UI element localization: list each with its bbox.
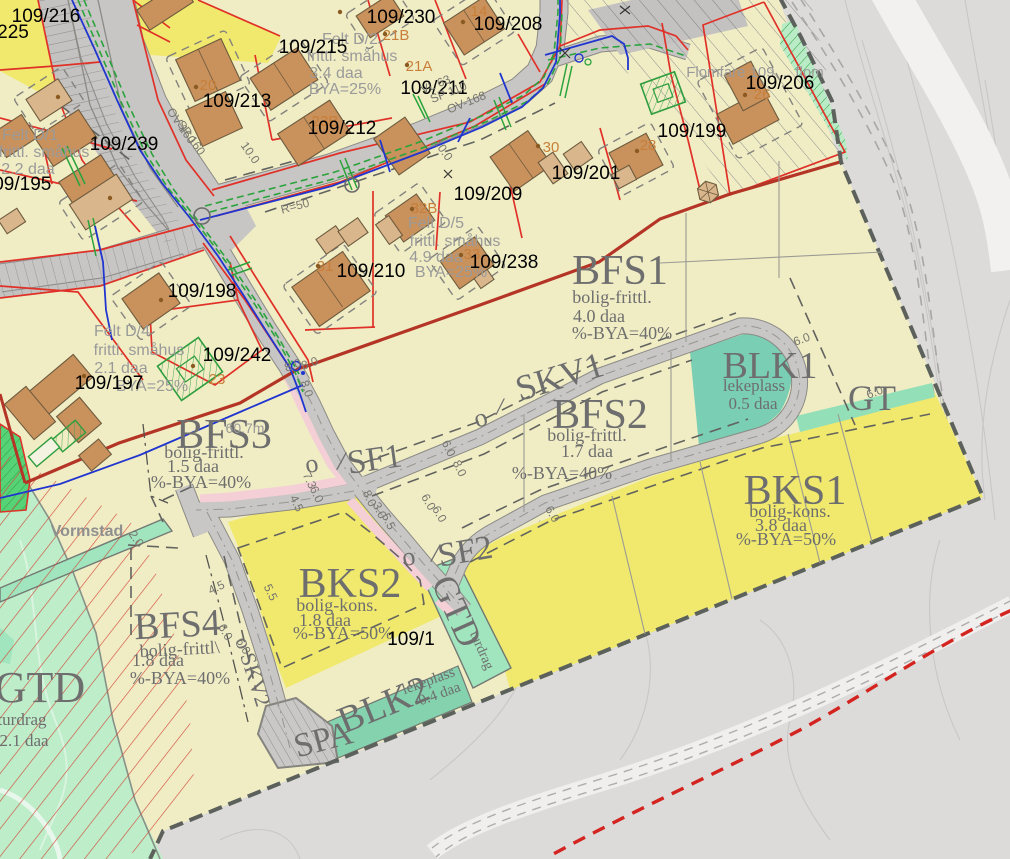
svg-text:28: 28 <box>640 137 657 154</box>
svg-text:2.1 daa: 2.1 daa <box>0 731 49 750</box>
svg-text:Felt D/1: Felt D/1 <box>2 127 58 144</box>
svg-text:109/213: 109/213 <box>203 91 272 112</box>
svg-text:109/199: 109/199 <box>658 121 727 142</box>
svg-text:30: 30 <box>543 139 560 156</box>
svg-text:Vormstad: Vormstad <box>51 523 124 540</box>
svg-text:frittl. småhus: frittl. småhus <box>0 143 89 161</box>
svg-text:1.8 daa: 1.8 daa <box>132 650 184 670</box>
svg-text:23: 23 <box>209 371 226 388</box>
svg-text:109/195: 109/195 <box>0 174 51 195</box>
svg-text:%-BYA=40%: %-BYA=40% <box>151 472 251 492</box>
svg-text:3.4 daa: 3.4 daa <box>309 65 362 82</box>
svg-text:109/208: 109/208 <box>474 14 543 35</box>
svg-text:SF1: SF1 <box>345 437 404 481</box>
svg-text:Felt D/4: Felt D/4 <box>94 323 150 340</box>
svg-text:GTD: GTD <box>0 663 85 712</box>
svg-text:32B: 32B <box>411 200 438 217</box>
svg-text:109/210: 109/210 <box>337 261 406 282</box>
svg-text:%-BYA=50%: %-BYA=50% <box>293 623 393 643</box>
svg-text:109/215: 109/215 <box>279 37 348 58</box>
svg-text:21B: 21B <box>383 27 410 44</box>
svg-text:225: 225 <box>0 22 29 43</box>
svg-text:%-BYA=50%: %-BYA=50% <box>736 529 836 549</box>
svg-text:frittl. småhus: frittl. småhus <box>94 341 185 359</box>
svg-text:%-BYA=40%: %-BYA=40% <box>572 323 672 343</box>
svg-text:%-BYA=40%: %-BYA=40% <box>130 668 230 688</box>
svg-text:frittl. småhus: frittl. småhus <box>410 232 501 250</box>
svg-text:109/201: 109/201 <box>552 163 621 184</box>
svg-text:bolig-frittl.: bolig-frittl. <box>572 287 652 307</box>
svg-text:109/206: 109/206 <box>746 73 815 94</box>
svg-text:109/238: 109/238 <box>470 252 539 273</box>
svg-text:109/239: 109/239 <box>90 134 159 155</box>
svg-text:BYA=25%: BYA=25% <box>309 81 381 98</box>
svg-text:Felt D/5: Felt D/5 <box>408 215 464 232</box>
svg-text:109/1: 109/1 <box>387 629 435 650</box>
svg-text:109/209: 109/209 <box>454 184 523 205</box>
svg-text:turdrag: turdrag <box>0 710 47 729</box>
svg-text:109/230: 109/230 <box>367 7 436 28</box>
svg-text:109/197: 109/197 <box>75 373 144 394</box>
svg-text:%-BYA=40%: %-BYA=40% <box>512 463 612 483</box>
svg-text:1.7 daa: 1.7 daa <box>561 441 613 461</box>
svg-text:109/198: 109/198 <box>168 281 237 302</box>
svg-text:21A: 21A <box>406 58 433 75</box>
svg-text:109/212: 109/212 <box>308 118 377 139</box>
svg-text:60.7m: 60.7m <box>226 420 265 436</box>
svg-text:lekeplass: lekeplass <box>723 376 785 395</box>
svg-text:0.5 daa: 0.5 daa <box>728 394 778 413</box>
svg-text:109/242: 109/242 <box>203 345 272 366</box>
